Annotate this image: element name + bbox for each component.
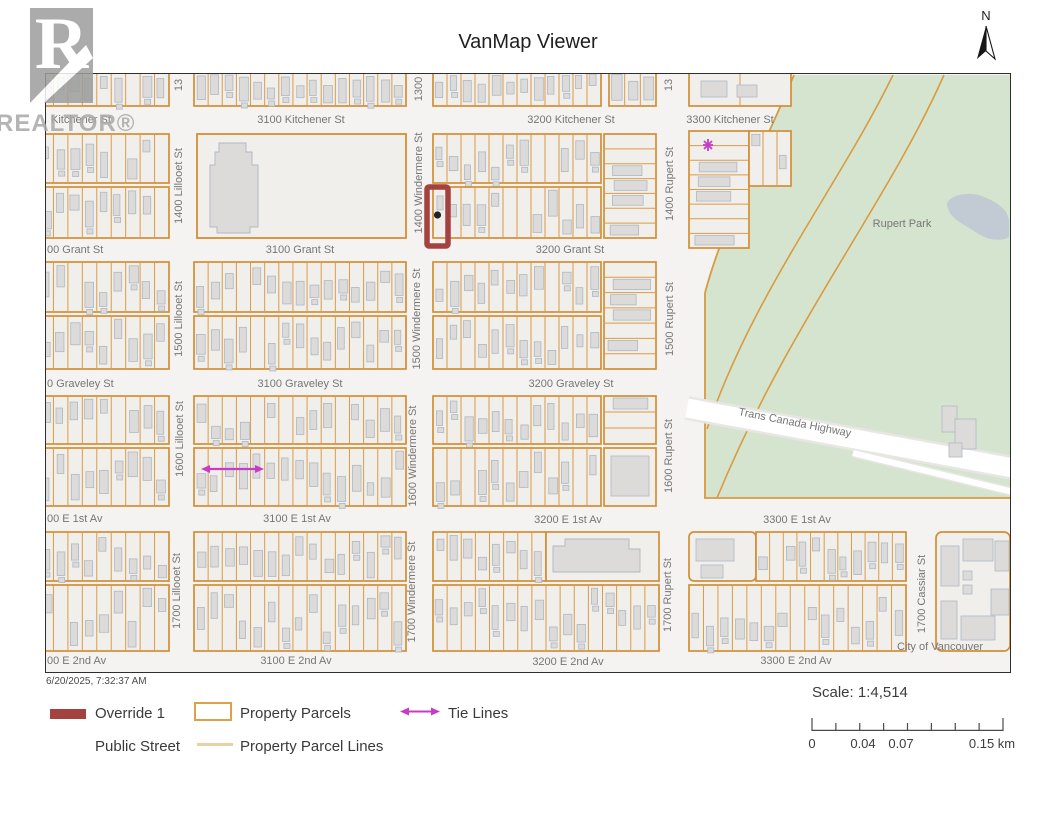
street-label: 1500 Rupert St: [664, 282, 676, 356]
legend-override-swatch: [50, 709, 86, 719]
street-label: 1500 Lillooet St: [173, 281, 185, 357]
street-label: 3200 E 2nd Av: [532, 656, 604, 668]
street-label: 1400 Rupert St: [664, 147, 676, 221]
scale-tick-2: 0.07: [888, 736, 913, 751]
street-label: 13: [173, 79, 185, 91]
legend-tie-lines-label: Tie Lines: [448, 705, 508, 722]
legend-property-parcels-swatch: [194, 702, 232, 721]
legend-property-parcel-lines-label: Property Parcel Lines: [240, 738, 383, 755]
street-label: 1500 Windermere St: [411, 269, 423, 370]
street-label: 00 Grant St: [47, 244, 103, 256]
street-label: 0 Graveley St: [47, 378, 114, 390]
scale-label: Scale: 1:4,514: [812, 684, 908, 701]
street-label: 3200 Kitchener St: [527, 114, 614, 126]
street-label: 00 E 1st Av: [47, 513, 103, 525]
map-drawing: Kitchener St3100 Kitchener St3200 Kitche…: [46, 74, 1010, 672]
legend-property-parcels-label: Property Parcels: [240, 705, 351, 722]
scale-bar: [800, 717, 1056, 733]
street-label: 13: [663, 79, 675, 91]
street-label: 3300 E 1st Av: [763, 514, 831, 526]
street-label: 3100 E 1st Av: [263, 513, 331, 525]
page-title: VanMap Viewer: [0, 31, 1056, 54]
street-label: 3100 Graveley St: [258, 378, 343, 390]
north-indicator: N: [968, 8, 1004, 67]
scale-tick-3: 0.15 km: [969, 736, 1015, 751]
street-label: 3300 Kitchener St: [686, 114, 773, 126]
street-label: Rupert Park: [873, 218, 932, 230]
street-label: 1600 Rupert St: [663, 419, 675, 493]
street-label: 1700 Lillooet St: [171, 553, 183, 629]
north-arrow-icon: [974, 24, 998, 62]
street-label: 00 E 2nd Av: [47, 655, 107, 667]
street-label: 3200 Grant St: [536, 244, 605, 256]
legend-public-street-label: Public Street: [95, 738, 180, 755]
street-label: 1600 Lillooet St: [174, 401, 186, 477]
legend-tie-lines-swatch: [399, 705, 441, 723]
street-label: 3100 Grant St: [266, 244, 335, 256]
north-label: N: [968, 8, 1004, 23]
override-point: [434, 211, 441, 218]
street-label: Kitchener St: [51, 114, 111, 126]
street-label: 1700 Windermere St: [406, 542, 418, 643]
street-label: 3100 E 2nd Av: [260, 655, 332, 667]
street-label: 1600 Windermere St: [407, 406, 419, 507]
street-label: 3200 E 1st Av: [534, 514, 602, 526]
scale-tick-0: 0: [808, 736, 815, 751]
street-label: 1300: [413, 77, 425, 101]
map-canvas[interactable]: Kitchener St3100 Kitchener St3200 Kitche…: [45, 73, 1011, 673]
street-label: 3100 Kitchener St: [257, 114, 344, 126]
street-label: City of Vancouver: [897, 641, 983, 653]
scale-tick-1: 0.04: [850, 736, 875, 751]
street-label: 1700 Cassiar St: [916, 555, 928, 633]
street-label: 1700 Rupert St: [662, 558, 674, 632]
street-label: 1400 Lillooet St: [173, 148, 185, 224]
legend-property-parcel-lines-swatch: [197, 743, 233, 746]
street-label: 3200 Graveley St: [529, 378, 614, 390]
vanmap-viewer-page: { "title": "VanMap Viewer", "north": { "…: [0, 0, 1056, 816]
street-label: 3300 E 2nd Av: [760, 655, 832, 667]
legend-override-label: Override 1: [95, 705, 165, 722]
map-timestamp: 6/20/2025, 7:32:37 AM: [46, 676, 147, 687]
street-label: 1400 Windermere St: [413, 133, 425, 234]
